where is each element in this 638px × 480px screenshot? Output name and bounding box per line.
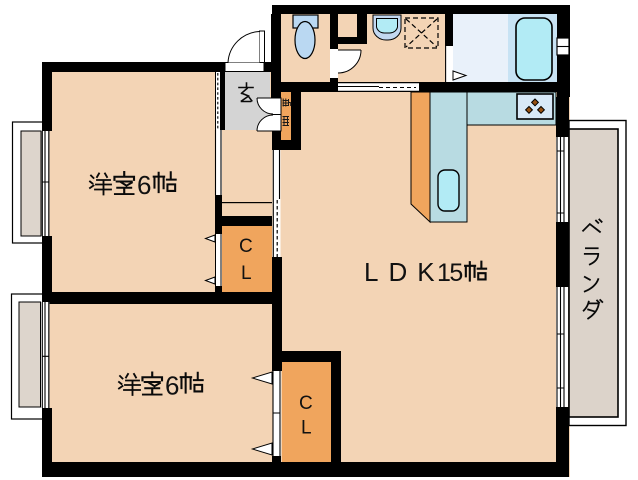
svg-text:C: C xyxy=(299,393,313,414)
svg-text:6: 6 xyxy=(165,371,179,401)
svg-text:L: L xyxy=(301,418,312,439)
svg-text:LDK: LDK xyxy=(364,257,445,287)
svg-text:15: 15 xyxy=(437,259,462,287)
svg-text:6: 6 xyxy=(137,170,151,200)
svg-text:L: L xyxy=(241,263,252,284)
svg-text:C: C xyxy=(239,236,253,257)
